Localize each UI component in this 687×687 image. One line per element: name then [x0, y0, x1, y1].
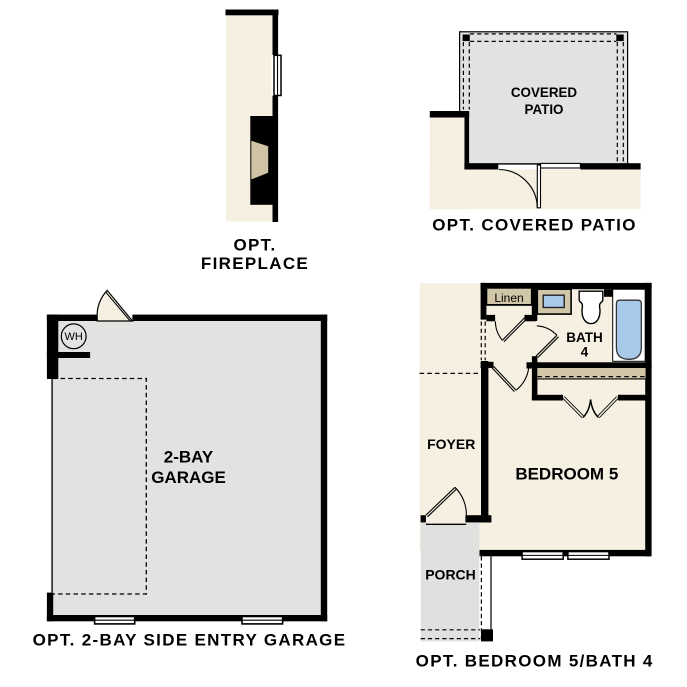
svg-text:COVERED: COVERED	[511, 85, 578, 100]
svg-text:GARAGE: GARAGE	[151, 468, 226, 487]
svg-text:4: 4	[581, 345, 589, 360]
svg-text:PORCH: PORCH	[425, 566, 476, 582]
svg-text:BEDROOM 5: BEDROOM 5	[515, 465, 618, 484]
svg-text:OPT.: OPT.	[233, 236, 276, 255]
svg-text:BATH: BATH	[566, 330, 603, 345]
svg-text:FOYER: FOYER	[427, 436, 475, 452]
svg-text:PATIO: PATIO	[525, 102, 564, 117]
svg-text:2-BAY: 2-BAY	[164, 448, 214, 467]
svg-text:Linen: Linen	[494, 291, 523, 305]
svg-text:WH: WH	[65, 331, 83, 343]
svg-text:OPT. BEDROOM 5/BATH 4: OPT. BEDROOM 5/BATH 4	[416, 652, 654, 671]
svg-text:OPT. COVERED PATIO: OPT. COVERED PATIO	[432, 216, 637, 235]
svg-text:FIREPLACE: FIREPLACE	[201, 254, 309, 273]
svg-text:OPT. 2-BAY SIDE ENTRY GARAGE: OPT. 2-BAY SIDE ENTRY GARAGE	[33, 631, 347, 650]
